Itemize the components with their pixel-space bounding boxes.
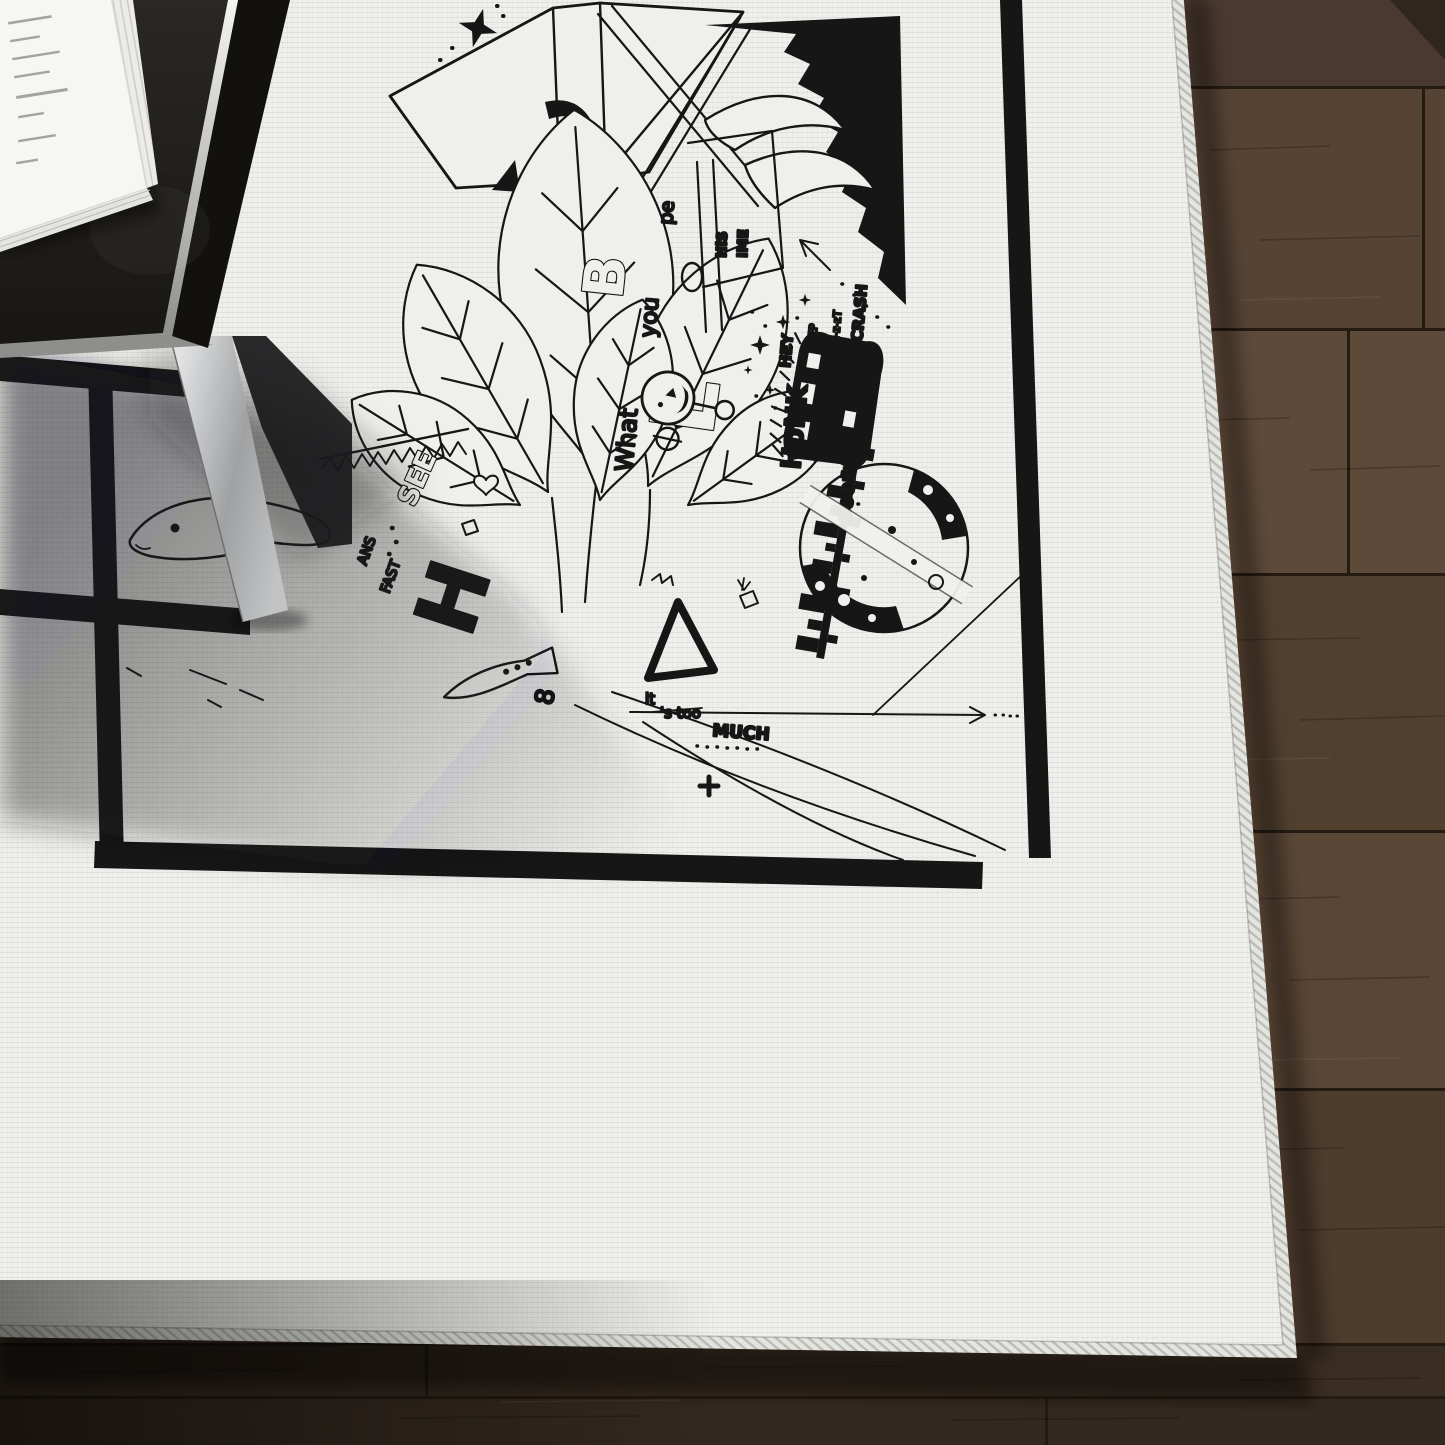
book xyxy=(0,0,162,252)
scene-photo: SEE ANS FAST H 8 xyxy=(0,0,1445,1445)
bottom-left-darkness xyxy=(0,1280,760,1445)
word-much: MUCH xyxy=(712,721,771,745)
glyph-b: B xyxy=(571,252,640,301)
scene-svg: SEE ANS FAST H 8 xyxy=(0,0,1445,1445)
word-beep: BEEP xyxy=(805,323,820,352)
word-hey: HEY xyxy=(776,332,797,368)
word-you: you xyxy=(636,296,664,338)
word-ime: IME xyxy=(735,229,752,258)
word-pe: pe xyxy=(655,200,679,226)
